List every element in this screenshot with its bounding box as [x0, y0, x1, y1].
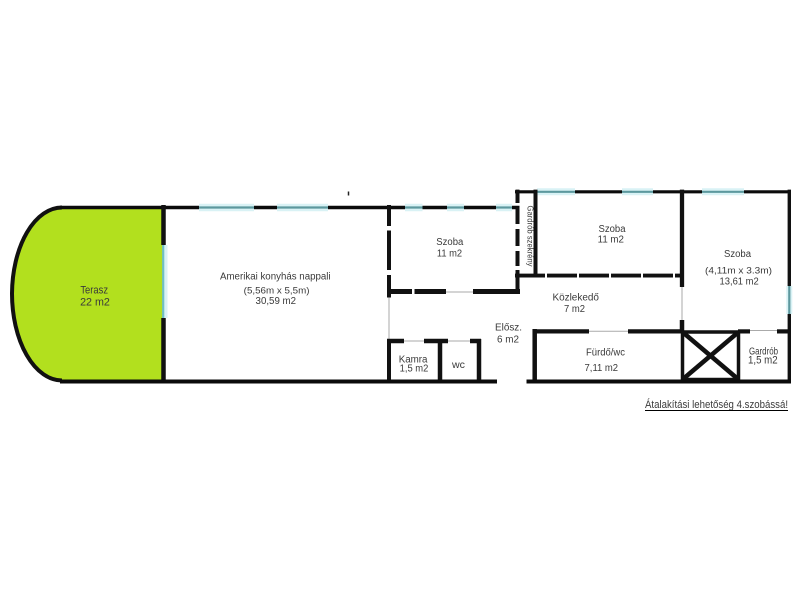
- svg-text:13,61 m2: 13,61 m2: [720, 276, 760, 287]
- svg-text:11 m2: 11 m2: [598, 234, 625, 245]
- svg-text:11 m2: 11 m2: [437, 248, 463, 259]
- svg-text:Átalakítási lehetőség 4.szobás: Átalakítási lehetőség 4.szobássá!: [645, 398, 788, 411]
- svg-text:Szoba: Szoba: [436, 237, 463, 248]
- svg-text:wc: wc: [451, 360, 465, 371]
- svg-text:(4,11m x 3.3m): (4,11m x 3.3m): [705, 266, 772, 277]
- svg-text:1,5 m2: 1,5 m2: [400, 364, 429, 375]
- svg-text:Gardrób szekrény: Gardrób szekrény: [526, 206, 536, 268]
- svg-text:(5,56m x 5,5m): (5,56m x 5,5m): [244, 285, 310, 296]
- svg-text:Közlekedő: Közlekedő: [552, 293, 599, 304]
- svg-text:30,59 m2: 30,59 m2: [256, 296, 297, 307]
- svg-text:7 m2: 7 m2: [564, 304, 585, 315]
- svg-text:Amerikai konyhás nappali: Amerikai konyhás nappali: [220, 272, 331, 283]
- svg-text:Fürdő/wc: Fürdő/wc: [586, 347, 625, 358]
- svg-text:1,5 m2: 1,5 m2: [748, 355, 778, 367]
- svg-text:Szoba: Szoba: [724, 249, 751, 260]
- svg-text:7,11 m2: 7,11 m2: [585, 363, 619, 374]
- svg-text:Elősz.: Elősz.: [495, 323, 522, 334]
- svg-text:6 m2: 6 m2: [497, 334, 519, 345]
- svg-text:Terasz: Terasz: [80, 285, 108, 297]
- svg-text:22 m2: 22 m2: [80, 297, 110, 309]
